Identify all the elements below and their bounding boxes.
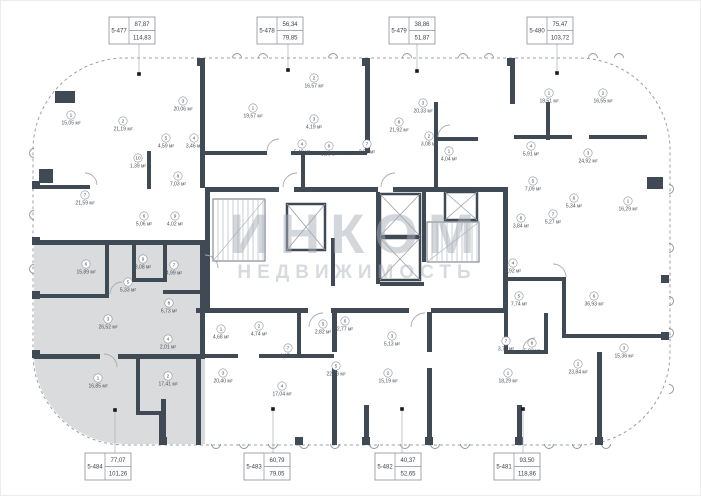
unit-callout: 5-47856,3479,85 bbox=[257, 17, 303, 72]
room-label: 24,74 м² bbox=[251, 322, 268, 338]
room-area: 6,73 м² bbox=[161, 309, 178, 315]
room-area: 21,92 м² bbox=[389, 128, 408, 134]
room-number: 2 bbox=[577, 362, 580, 368]
window-icon bbox=[589, 54, 598, 59]
wall-segment bbox=[118, 354, 205, 359]
floorplan-canvas: 115,05 м²221,19 м²320,06 м²54,59 м²43,46… bbox=[0, 0, 701, 496]
window-icon bbox=[259, 54, 268, 59]
room-area: 22,76 м² bbox=[326, 372, 345, 378]
room-area: 2,82 м² bbox=[315, 330, 332, 336]
unit-callout: 5-47787,87114,83 bbox=[109, 17, 155, 76]
unit-area-living: 77,07 bbox=[110, 458, 126, 464]
unit-area-total: 79,05 bbox=[269, 472, 285, 478]
door-arc bbox=[411, 313, 425, 327]
unit-id: 5-484 bbox=[87, 465, 103, 471]
room-number: 8 bbox=[520, 216, 523, 222]
room-label: 63,85 м² bbox=[321, 142, 338, 158]
room-label: 57,09 м² bbox=[525, 177, 542, 193]
room-label: 320,40 м² bbox=[213, 369, 232, 385]
room-area: 5,13 м² bbox=[384, 342, 401, 348]
room-area: 21,19 м² bbox=[113, 127, 132, 133]
watermark-text: ИНКОМ bbox=[229, 202, 484, 265]
callout-anchor-dot bbox=[521, 407, 525, 411]
room-area: 5,33 м² bbox=[120, 288, 137, 294]
room-label: 101,39 м² bbox=[130, 154, 147, 170]
wall-segment bbox=[661, 275, 669, 283]
room-label: 118,29 м² bbox=[498, 369, 517, 385]
room-area: 36,93 м² bbox=[584, 302, 603, 308]
wall-segment bbox=[196, 354, 201, 445]
room-number: 4 bbox=[281, 384, 284, 390]
room-number: 2 bbox=[428, 134, 431, 140]
room-label: 73,74 м² bbox=[498, 337, 515, 353]
room-number: 5 bbox=[127, 280, 130, 286]
room-label: 417,04 м² bbox=[272, 382, 291, 398]
room-number: 4 bbox=[512, 261, 515, 267]
unit-area-living: 60,79 bbox=[269, 458, 285, 464]
wall-segment bbox=[34, 294, 107, 298]
wall-segment bbox=[331, 308, 409, 313]
window-icon bbox=[403, 54, 412, 59]
room-number: 8 bbox=[398, 120, 401, 126]
room-number: 1 bbox=[220, 327, 223, 333]
room-number: 5 bbox=[322, 322, 325, 328]
wall-segment bbox=[205, 151, 267, 155]
wall-segment bbox=[544, 313, 548, 353]
room-area: 20,40 м² bbox=[213, 379, 232, 385]
room-area: 16,85 м² bbox=[88, 384, 107, 390]
wall-segment bbox=[434, 137, 478, 141]
wall-segment bbox=[503, 187, 508, 313]
room-number: 6 bbox=[573, 196, 576, 202]
wall-segment bbox=[200, 58, 205, 188]
window-icon bbox=[233, 54, 242, 59]
wall-segment bbox=[197, 58, 205, 66]
room-area: 3,74 м² bbox=[498, 347, 515, 353]
room-number: 1 bbox=[548, 91, 551, 97]
room-area: 5,48 м² bbox=[294, 150, 311, 156]
room-label: 115,05 м² bbox=[61, 111, 80, 127]
floor-plan-svg: 115,05 м²221,19 м²320,06 м²54,59 м²43,46… bbox=[1, 1, 701, 496]
room-number: 5 bbox=[518, 294, 521, 300]
room-number: 1 bbox=[252, 106, 255, 112]
callout-anchor-dot bbox=[555, 71, 559, 75]
unit-area-total: 114,83 bbox=[133, 36, 152, 42]
room-area: 18,51 м² bbox=[539, 99, 558, 105]
wall-segment bbox=[205, 192, 210, 313]
room-label: 315,36 м² bbox=[614, 344, 633, 360]
room-number: 2 bbox=[387, 371, 390, 377]
room-area: 15,05 м² bbox=[61, 121, 80, 127]
room-number: 5 bbox=[335, 364, 338, 370]
room-area: 26,52 м² bbox=[98, 325, 117, 331]
room-area: 3,08 м² bbox=[135, 265, 152, 271]
wall-segment bbox=[200, 354, 238, 358]
wall-segment bbox=[297, 312, 301, 356]
room-number: 2 bbox=[167, 374, 170, 380]
room-number: 2 bbox=[122, 119, 125, 125]
unit-area-living: 75,47 bbox=[552, 22, 568, 28]
room-label: 43,46 м² bbox=[186, 134, 203, 150]
unit-area-total: 103,72 bbox=[551, 36, 570, 42]
wall-segment bbox=[55, 91, 75, 103]
room-label: 57,74 м² bbox=[511, 292, 528, 308]
window-icon bbox=[485, 54, 494, 59]
room-number: 3 bbox=[623, 346, 626, 352]
room-label: 216,55 м² bbox=[593, 89, 612, 105]
room-number: 8 bbox=[531, 341, 534, 347]
wall-segment bbox=[163, 290, 205, 294]
wall-segment bbox=[295, 437, 303, 445]
room-area: 16,57 м² bbox=[304, 84, 323, 90]
room-label: 62,77 м² bbox=[337, 317, 354, 333]
room-label: 721,59 м² bbox=[75, 191, 94, 207]
room-number: 4 bbox=[301, 142, 304, 148]
unit-id: 5-482 bbox=[377, 465, 393, 471]
room-number: 4 bbox=[530, 144, 533, 150]
wall-segment bbox=[365, 58, 370, 153]
wall-segment bbox=[597, 352, 602, 445]
room-area: 19,57 м² bbox=[243, 114, 262, 120]
room-area: 15,36 м² bbox=[614, 354, 633, 360]
wall-segment bbox=[105, 242, 109, 298]
room-label: 636,93 м² bbox=[584, 292, 603, 308]
wall-segment bbox=[427, 368, 432, 445]
room-number: 5 bbox=[532, 179, 535, 185]
room-number: 9 bbox=[174, 214, 177, 220]
unit-area-living: 38,86 bbox=[414, 22, 430, 28]
callout-anchor-dot bbox=[286, 68, 290, 72]
room-label: 116,29 м² bbox=[618, 197, 637, 213]
unit-area-total: 79,85 bbox=[282, 36, 298, 42]
wall-segment bbox=[562, 277, 566, 338]
room-area: 20,33 м² bbox=[413, 109, 432, 115]
room-label: 45,48 м² bbox=[294, 140, 311, 156]
wall-segment bbox=[294, 187, 378, 192]
room-number: 1 bbox=[507, 371, 510, 377]
room-label: 119,57 м² bbox=[243, 104, 262, 120]
room-number: 2 bbox=[602, 91, 605, 97]
wall-segment bbox=[259, 354, 334, 358]
room-area: 3,08 м² bbox=[421, 142, 438, 148]
unit-callout: 5-48075,47103,72 bbox=[527, 17, 573, 75]
room-number: 3 bbox=[313, 117, 316, 123]
unit-id: 5-481 bbox=[496, 465, 512, 471]
callout-anchor-dot bbox=[113, 408, 117, 412]
unit-area-living: 56,34 bbox=[282, 22, 298, 28]
room-label: 215,19 м² bbox=[378, 369, 397, 385]
room-area: 3,46 м² bbox=[186, 144, 203, 150]
room-label: 65,06 м² bbox=[136, 212, 153, 228]
room-area: 4,04 м² bbox=[441, 157, 458, 163]
room-area: 2,01 м² bbox=[160, 345, 177, 351]
room-area: 4,99 м² bbox=[166, 271, 183, 277]
wall-segment bbox=[136, 411, 162, 415]
wall-segment bbox=[132, 278, 167, 282]
room-area: 21,59 м² bbox=[75, 201, 94, 207]
room-area: 15,19 м² bbox=[378, 379, 397, 385]
room-label: 87,03 м² bbox=[170, 172, 187, 188]
room-area: 2,77 м² bbox=[337, 327, 354, 333]
room-label: 216,57 м² bbox=[304, 74, 323, 90]
room-number: 6 bbox=[85, 262, 88, 268]
unit-area-living: 93,50 bbox=[519, 458, 535, 464]
room-label: 75,27 м² bbox=[545, 210, 562, 226]
room-number: 1 bbox=[70, 113, 73, 119]
room-area: 4,59 м² bbox=[158, 144, 175, 150]
unit-callout: 5-48240,3752,65 bbox=[375, 407, 421, 480]
unit-area-living: 87,87 bbox=[134, 22, 150, 28]
room-number: 3 bbox=[391, 334, 394, 340]
unit-callout: 5-47938,8651,87 bbox=[389, 17, 435, 73]
wall-segment bbox=[562, 334, 669, 338]
room-area: 16,55 м² bbox=[593, 99, 612, 105]
room-area: 16,29 м² bbox=[618, 207, 637, 213]
room-label: 14,04 м² bbox=[441, 147, 458, 163]
wall-segment bbox=[200, 240, 205, 358]
callout-anchor-dot bbox=[415, 69, 419, 73]
unit-id: 5-477 bbox=[111, 29, 127, 35]
room-number: 6 bbox=[344, 319, 347, 325]
window-icon bbox=[459, 54, 468, 59]
room-number: 6 bbox=[143, 214, 146, 220]
room-area: 17,41 м² bbox=[158, 382, 177, 388]
unit-area-total: 51,87 bbox=[414, 36, 430, 42]
wall-segment bbox=[507, 58, 515, 66]
room-area: 4,74 м² bbox=[251, 332, 268, 338]
room-number: 1 bbox=[627, 199, 630, 205]
room-area: 5,91 м² bbox=[523, 152, 540, 158]
wall-segment bbox=[362, 58, 370, 66]
room-number: 10 bbox=[135, 156, 141, 162]
room-number: 3 bbox=[222, 371, 225, 377]
room-area: 7,03 м² bbox=[170, 182, 187, 188]
door-arc bbox=[438, 125, 450, 137]
room-area: 5,34 м² bbox=[566, 204, 583, 210]
wall-segment bbox=[196, 308, 308, 313]
unit-area-total: 52,65 bbox=[400, 472, 416, 478]
room-number: 2 bbox=[258, 324, 261, 330]
room-label: 65,34 м² bbox=[566, 194, 583, 210]
wall-segment bbox=[514, 135, 572, 139]
wall-segment bbox=[589, 135, 647, 139]
room-label: 74,17 м² bbox=[280, 344, 297, 360]
unit-id: 5-478 bbox=[259, 29, 275, 35]
room-label: 118,51 м² bbox=[539, 89, 558, 105]
door-arc bbox=[85, 173, 97, 185]
room-number: 1 bbox=[448, 149, 451, 155]
unit-area-total: 118,86 bbox=[518, 472, 537, 478]
wall-segment bbox=[301, 153, 305, 189]
callout-anchor-dot bbox=[137, 72, 141, 76]
room-area: 3,85 м² bbox=[321, 152, 338, 158]
room-area: 18,29 м² bbox=[498, 379, 517, 385]
room-number: 6 bbox=[593, 294, 596, 300]
room-number: 7 bbox=[505, 339, 508, 345]
watermark-subtext: НЕДВИЖИМОСТЬ bbox=[237, 262, 476, 283]
room-label: 324,92 м² bbox=[578, 149, 597, 165]
unit-area-total: 101,26 bbox=[109, 472, 128, 478]
room-number: 3 bbox=[422, 101, 425, 107]
wall-segment bbox=[136, 358, 140, 414]
window-icon bbox=[669, 385, 674, 394]
window-icon bbox=[615, 54, 624, 59]
room-area: 20,06 м² bbox=[173, 107, 192, 113]
room-label: 35,13 м² bbox=[384, 332, 401, 348]
room-area: 23,84 м² bbox=[568, 370, 587, 376]
wall-segment bbox=[34, 185, 90, 189]
room-number: 8 bbox=[177, 174, 180, 180]
wall-segment bbox=[34, 354, 100, 359]
room-area: 4,92 м² bbox=[505, 269, 522, 275]
door-arc bbox=[553, 264, 566, 277]
room-area: 7,74 м² bbox=[511, 302, 528, 308]
room-area: 5,06 м² bbox=[136, 222, 153, 228]
room-area: 7,09 м² bbox=[525, 187, 542, 193]
wall-segment bbox=[132, 242, 136, 282]
room-label: 221,19 м² bbox=[113, 117, 132, 133]
room-number: 3 bbox=[587, 151, 590, 157]
room-number: 6 bbox=[328, 144, 331, 150]
room-number: 7 bbox=[287, 346, 290, 352]
room-number: 8 bbox=[168, 301, 171, 307]
wall-segment bbox=[34, 240, 205, 245]
window-icon bbox=[329, 54, 338, 59]
room-label: 94,02 м² bbox=[167, 212, 184, 228]
room-number: 7 bbox=[84, 193, 87, 199]
room-label: 72,92 м² bbox=[359, 140, 376, 156]
room-label: 522,76 м² bbox=[326, 362, 345, 378]
room-number: 3 bbox=[107, 317, 110, 323]
room-label: 14,68 м² bbox=[213, 325, 230, 341]
room-area: 17,04 м² bbox=[272, 392, 291, 398]
room-label: 52,82 м² bbox=[315, 320, 332, 336]
room-label: 83,84 м² bbox=[513, 214, 530, 230]
room-number: 9 bbox=[142, 257, 145, 263]
wall-segment bbox=[332, 368, 337, 445]
wall-segment bbox=[147, 151, 151, 189]
room-area: 4,19 м² bbox=[306, 125, 323, 131]
door-arc bbox=[283, 173, 297, 187]
room-label: 34,19 м² bbox=[306, 115, 323, 131]
unit-id: 5-483 bbox=[246, 465, 262, 471]
wall-segment bbox=[159, 411, 163, 445]
room-area: 1,39 м² bbox=[130, 164, 147, 170]
wall-segment bbox=[205, 187, 279, 192]
room-area: 4,17 м² bbox=[280, 354, 297, 360]
wall-segment bbox=[546, 102, 550, 140]
room-area: 3,84 м² bbox=[513, 224, 530, 230]
wall-segment bbox=[504, 277, 566, 281]
room-label: 45,91 м² bbox=[523, 142, 540, 158]
room-number: 7 bbox=[173, 263, 176, 269]
wall-segment bbox=[427, 312, 432, 352]
room-label: 821,92 м² bbox=[389, 118, 408, 134]
wall-segment bbox=[39, 169, 53, 183]
room-number: 1 bbox=[97, 376, 100, 382]
room-number: 7 bbox=[552, 212, 555, 218]
room-label: 320,06 м² bbox=[173, 97, 192, 113]
room-area: 5,03 м² bbox=[524, 349, 541, 355]
unit-id: 5-479 bbox=[391, 29, 407, 35]
room-number: 2 bbox=[313, 76, 316, 82]
room-label: 54,59 м² bbox=[158, 134, 175, 150]
door-arc bbox=[267, 139, 279, 151]
wall-segment bbox=[431, 308, 508, 313]
room-number: 3 bbox=[182, 99, 185, 105]
room-label: 320,33 м² bbox=[413, 99, 432, 115]
wall-segment bbox=[515, 437, 523, 445]
room-area: 4,68 м² bbox=[213, 335, 230, 341]
room-label: 223,84 м² bbox=[568, 360, 587, 376]
room-number: 7 bbox=[366, 142, 369, 148]
room-number: 4 bbox=[193, 136, 196, 142]
door-arc bbox=[381, 173, 395, 187]
room-number: 4 bbox=[167, 337, 170, 343]
unit-id: 5-480 bbox=[529, 29, 545, 35]
wall-segment bbox=[647, 177, 663, 189]
room-area: 24,92 м² bbox=[578, 159, 597, 165]
callout-anchor-dot bbox=[400, 407, 404, 411]
room-area: 4,02 м² bbox=[167, 222, 184, 228]
room-area: 15,89 м² bbox=[76, 270, 95, 276]
wall-segment bbox=[362, 437, 370, 445]
room-area: 5,27 м² bbox=[545, 220, 562, 226]
unit-callout: 5-48360,7979,05 bbox=[244, 407, 290, 480]
room-area: 2,92 м² bbox=[359, 150, 376, 156]
unit-area-living: 40,37 bbox=[400, 458, 416, 464]
callout-anchor-dot bbox=[271, 407, 275, 411]
room-number: 5 bbox=[165, 136, 168, 142]
